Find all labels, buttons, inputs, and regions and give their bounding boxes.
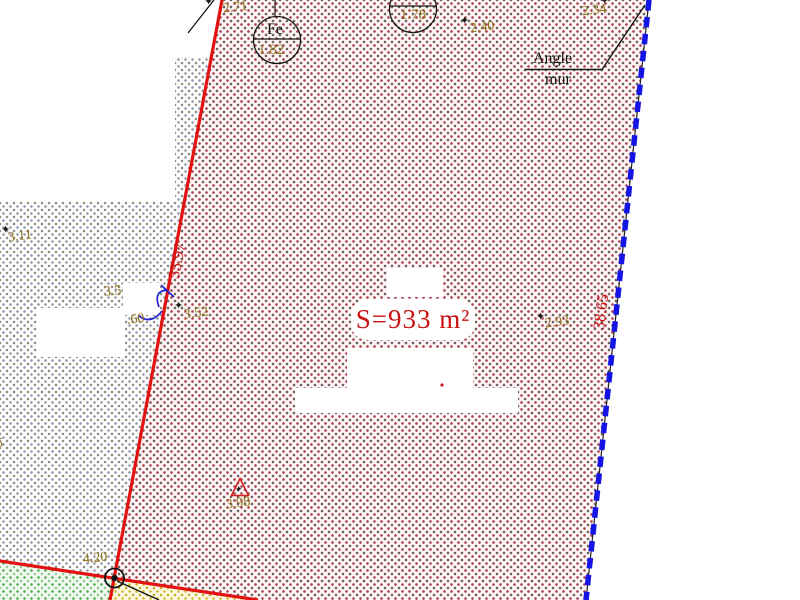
spot-elevation: 4.20 — [82, 551, 108, 567]
left-boundary-line — [110, 0, 222, 600]
spot-elevation: 3.5 — [103, 284, 122, 300]
fe-marker-value: 1.78 — [400, 8, 426, 23]
survey-point-icon: ✦ — [600, 0, 609, 7]
wall-note-line1: Angle — [533, 51, 572, 67]
plot-dot — [440, 383, 443, 386]
boundary-corner-dot — [111, 575, 117, 581]
survey-point-icon: ✦ — [204, 0, 213, 8]
spot-elevation: .60 — [126, 312, 145, 328]
parcel-area-label: S=933 m² — [356, 304, 471, 335]
fe-marker-label: Fe — [267, 22, 283, 38]
spot-elevation: 2.40 — [469, 20, 495, 37]
survey-point-icon: ✦ — [536, 312, 545, 323]
survey-plan-canvas: S=933 m² 35.97 38.65 Angle mur Fe 1.82 F… — [0, 0, 800, 600]
survey-point-icon: ✦ — [174, 301, 183, 312]
survey-point-icon: ✦ — [460, 16, 469, 27]
spot-elevation: 5 — [0, 437, 3, 451]
survey-point-icon: ✦ — [235, 485, 243, 494]
fe-marker-value: 1.82 — [258, 43, 284, 58]
survey-point-icon: ✦ — [1, 225, 10, 236]
parcel-area-halo: S=933 m² — [351, 299, 475, 340]
wall-note-line2: mur — [545, 72, 571, 88]
bottom-boundary-line — [0, 561, 258, 600]
